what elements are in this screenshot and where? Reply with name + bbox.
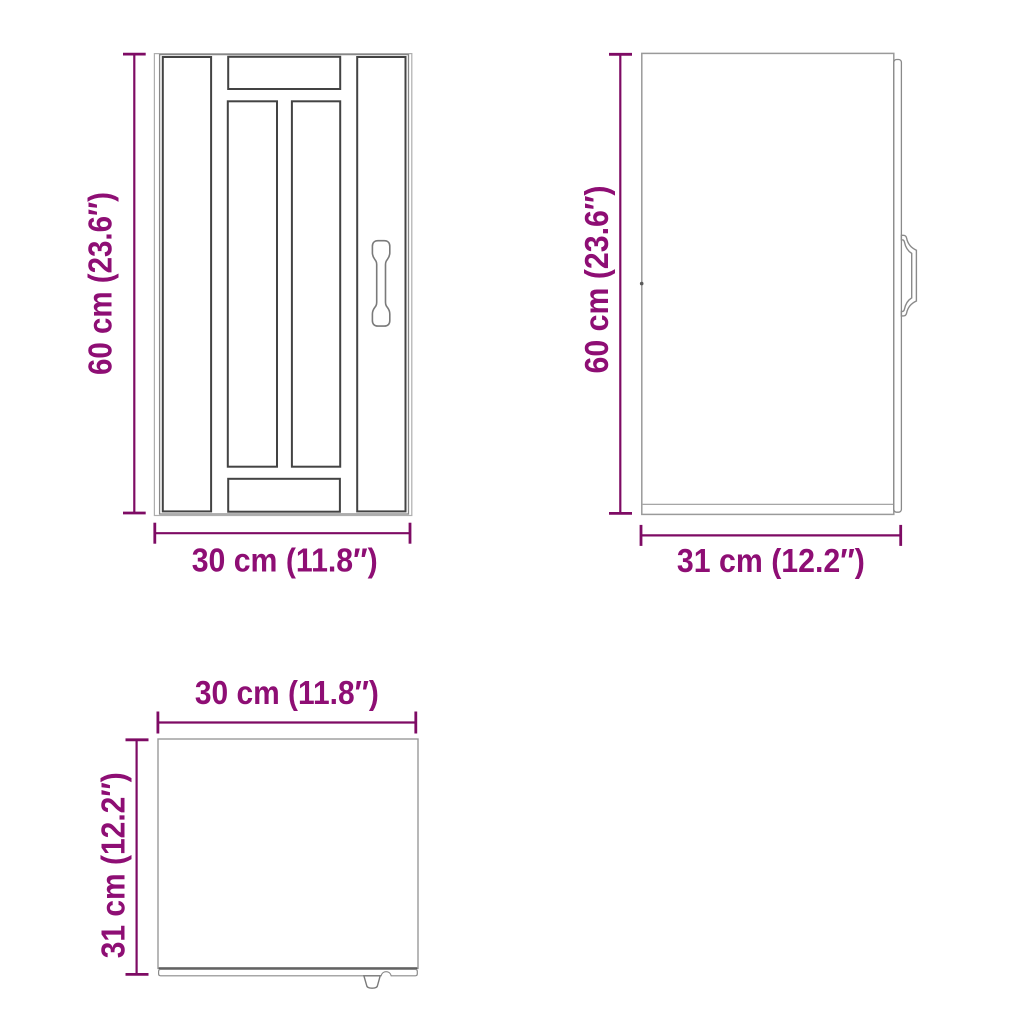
svg-text:30 cm (11.8″): 30 cm (11.8″): [192, 542, 378, 579]
svg-text:31 cm (12.2″): 31 cm (12.2″): [677, 542, 865, 579]
svg-text:30 cm (11.8″): 30 cm (11.8″): [195, 674, 379, 711]
svg-text:60 cm (23.6″): 60 cm (23.6″): [81, 192, 118, 375]
svg-text:31 cm (12.2″): 31 cm (12.2″): [95, 772, 132, 958]
svg-text:60 cm (23.6″): 60 cm (23.6″): [578, 186, 615, 374]
